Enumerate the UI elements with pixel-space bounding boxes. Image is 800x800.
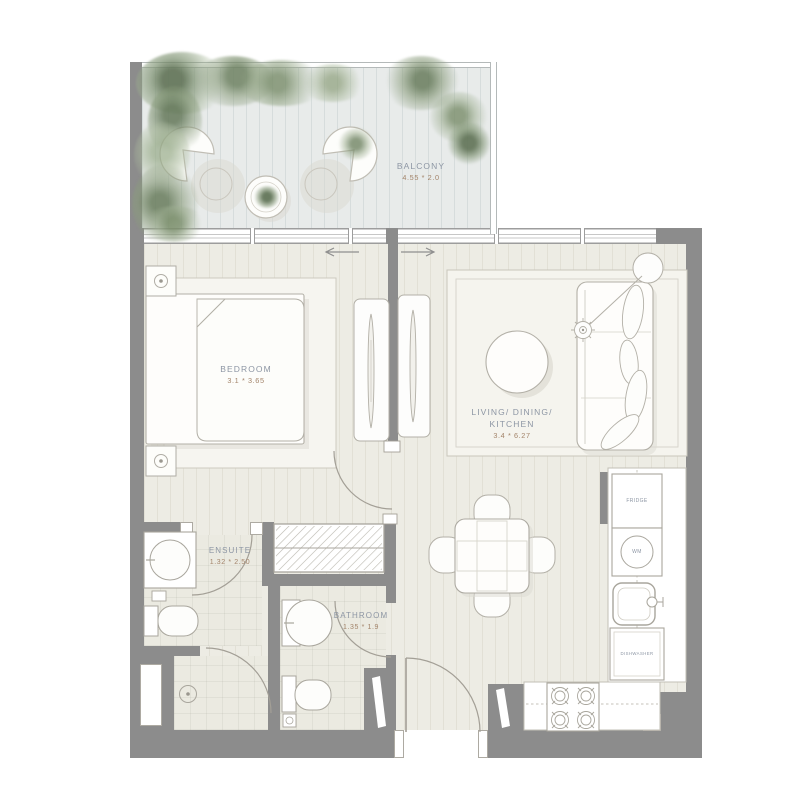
ensuite-toilet	[158, 606, 198, 636]
bedroom-name: BEDROOM	[220, 363, 272, 375]
ensuite-name: ENSUITE	[209, 545, 251, 557]
bedroom-door-arc	[334, 451, 392, 509]
bedroom-door-hinge	[384, 441, 400, 452]
washing-machine-label: WM	[612, 549, 662, 555]
entry-door-arc	[406, 658, 480, 732]
floor-drain-box	[283, 714, 296, 727]
kitchen-fixtures	[524, 468, 686, 731]
ensuite-toilet-tank	[144, 606, 158, 636]
dining-table	[455, 519, 529, 593]
bedroom-dims: 3.1 * 3.65	[227, 376, 264, 386]
living-name-line2: KITCHEN	[489, 418, 534, 430]
bathroom-toilet	[295, 680, 331, 710]
balcony-label: BALCONY 4.55 * 2.0	[366, 160, 476, 183]
tv-unit-panel	[410, 310, 416, 422]
lamp-center	[159, 279, 163, 283]
balcony-name: BALCONY	[397, 160, 445, 172]
slide-arrow-left	[326, 248, 359, 256]
bedroom-label: BEDROOM 3.1 * 3.65	[186, 363, 306, 386]
table-plant	[254, 186, 280, 208]
ensuite-label: ENSUITE 1.32 * 2.50	[172, 545, 288, 568]
plant-small	[338, 128, 374, 160]
ensuite-cistern	[152, 591, 166, 601]
entry-right-doorstop	[496, 688, 510, 728]
living-label: LIVING/ DINING/ KITCHEN 3.4 * 6.27	[448, 406, 576, 441]
bathroom-label: BATHROOM 1.35 * 1.9	[301, 610, 421, 633]
shower-door-arc	[206, 648, 271, 713]
hall-closet	[274, 524, 384, 572]
slide-arrow-right	[401, 248, 434, 256]
living-name-line1: LIVING/ DINING/	[471, 406, 552, 418]
floor-lamp-base	[633, 253, 663, 283]
bathroom-toilet-tank	[282, 676, 296, 712]
lamp-head-dot	[582, 329, 584, 331]
plant-cluster	[142, 206, 206, 242]
chair-shadow	[300, 159, 354, 213]
plant-pot	[448, 122, 490, 164]
coffee-table	[486, 331, 548, 393]
entry-left-doorstop	[372, 676, 386, 728]
shower-drain-dot	[186, 692, 190, 696]
balcony-dims: 4.55 * 2.0	[402, 173, 439, 183]
dining-set	[429, 495, 555, 617]
wall-end-cap	[383, 514, 397, 524]
dishwasher-label: DISHWASHER	[610, 651, 664, 656]
bathroom-name: BATHROOM	[334, 610, 388, 622]
ensuite-dims: 1.32 * 2.50	[210, 558, 250, 568]
lamp-center	[159, 459, 163, 463]
chair-shadow	[191, 159, 245, 213]
plant-cluster	[300, 64, 366, 102]
sink-faucet	[647, 597, 657, 607]
fridge-label: FRIDGE	[612, 498, 662, 504]
bathroom-dims: 1.35 * 1.9	[343, 623, 379, 633]
living-dims: 3.4 * 6.27	[493, 431, 530, 441]
floor-plan: BALCONY 4.55 * 2.0 BEDROOM 3.1 * 3.65 LI…	[0, 0, 800, 800]
